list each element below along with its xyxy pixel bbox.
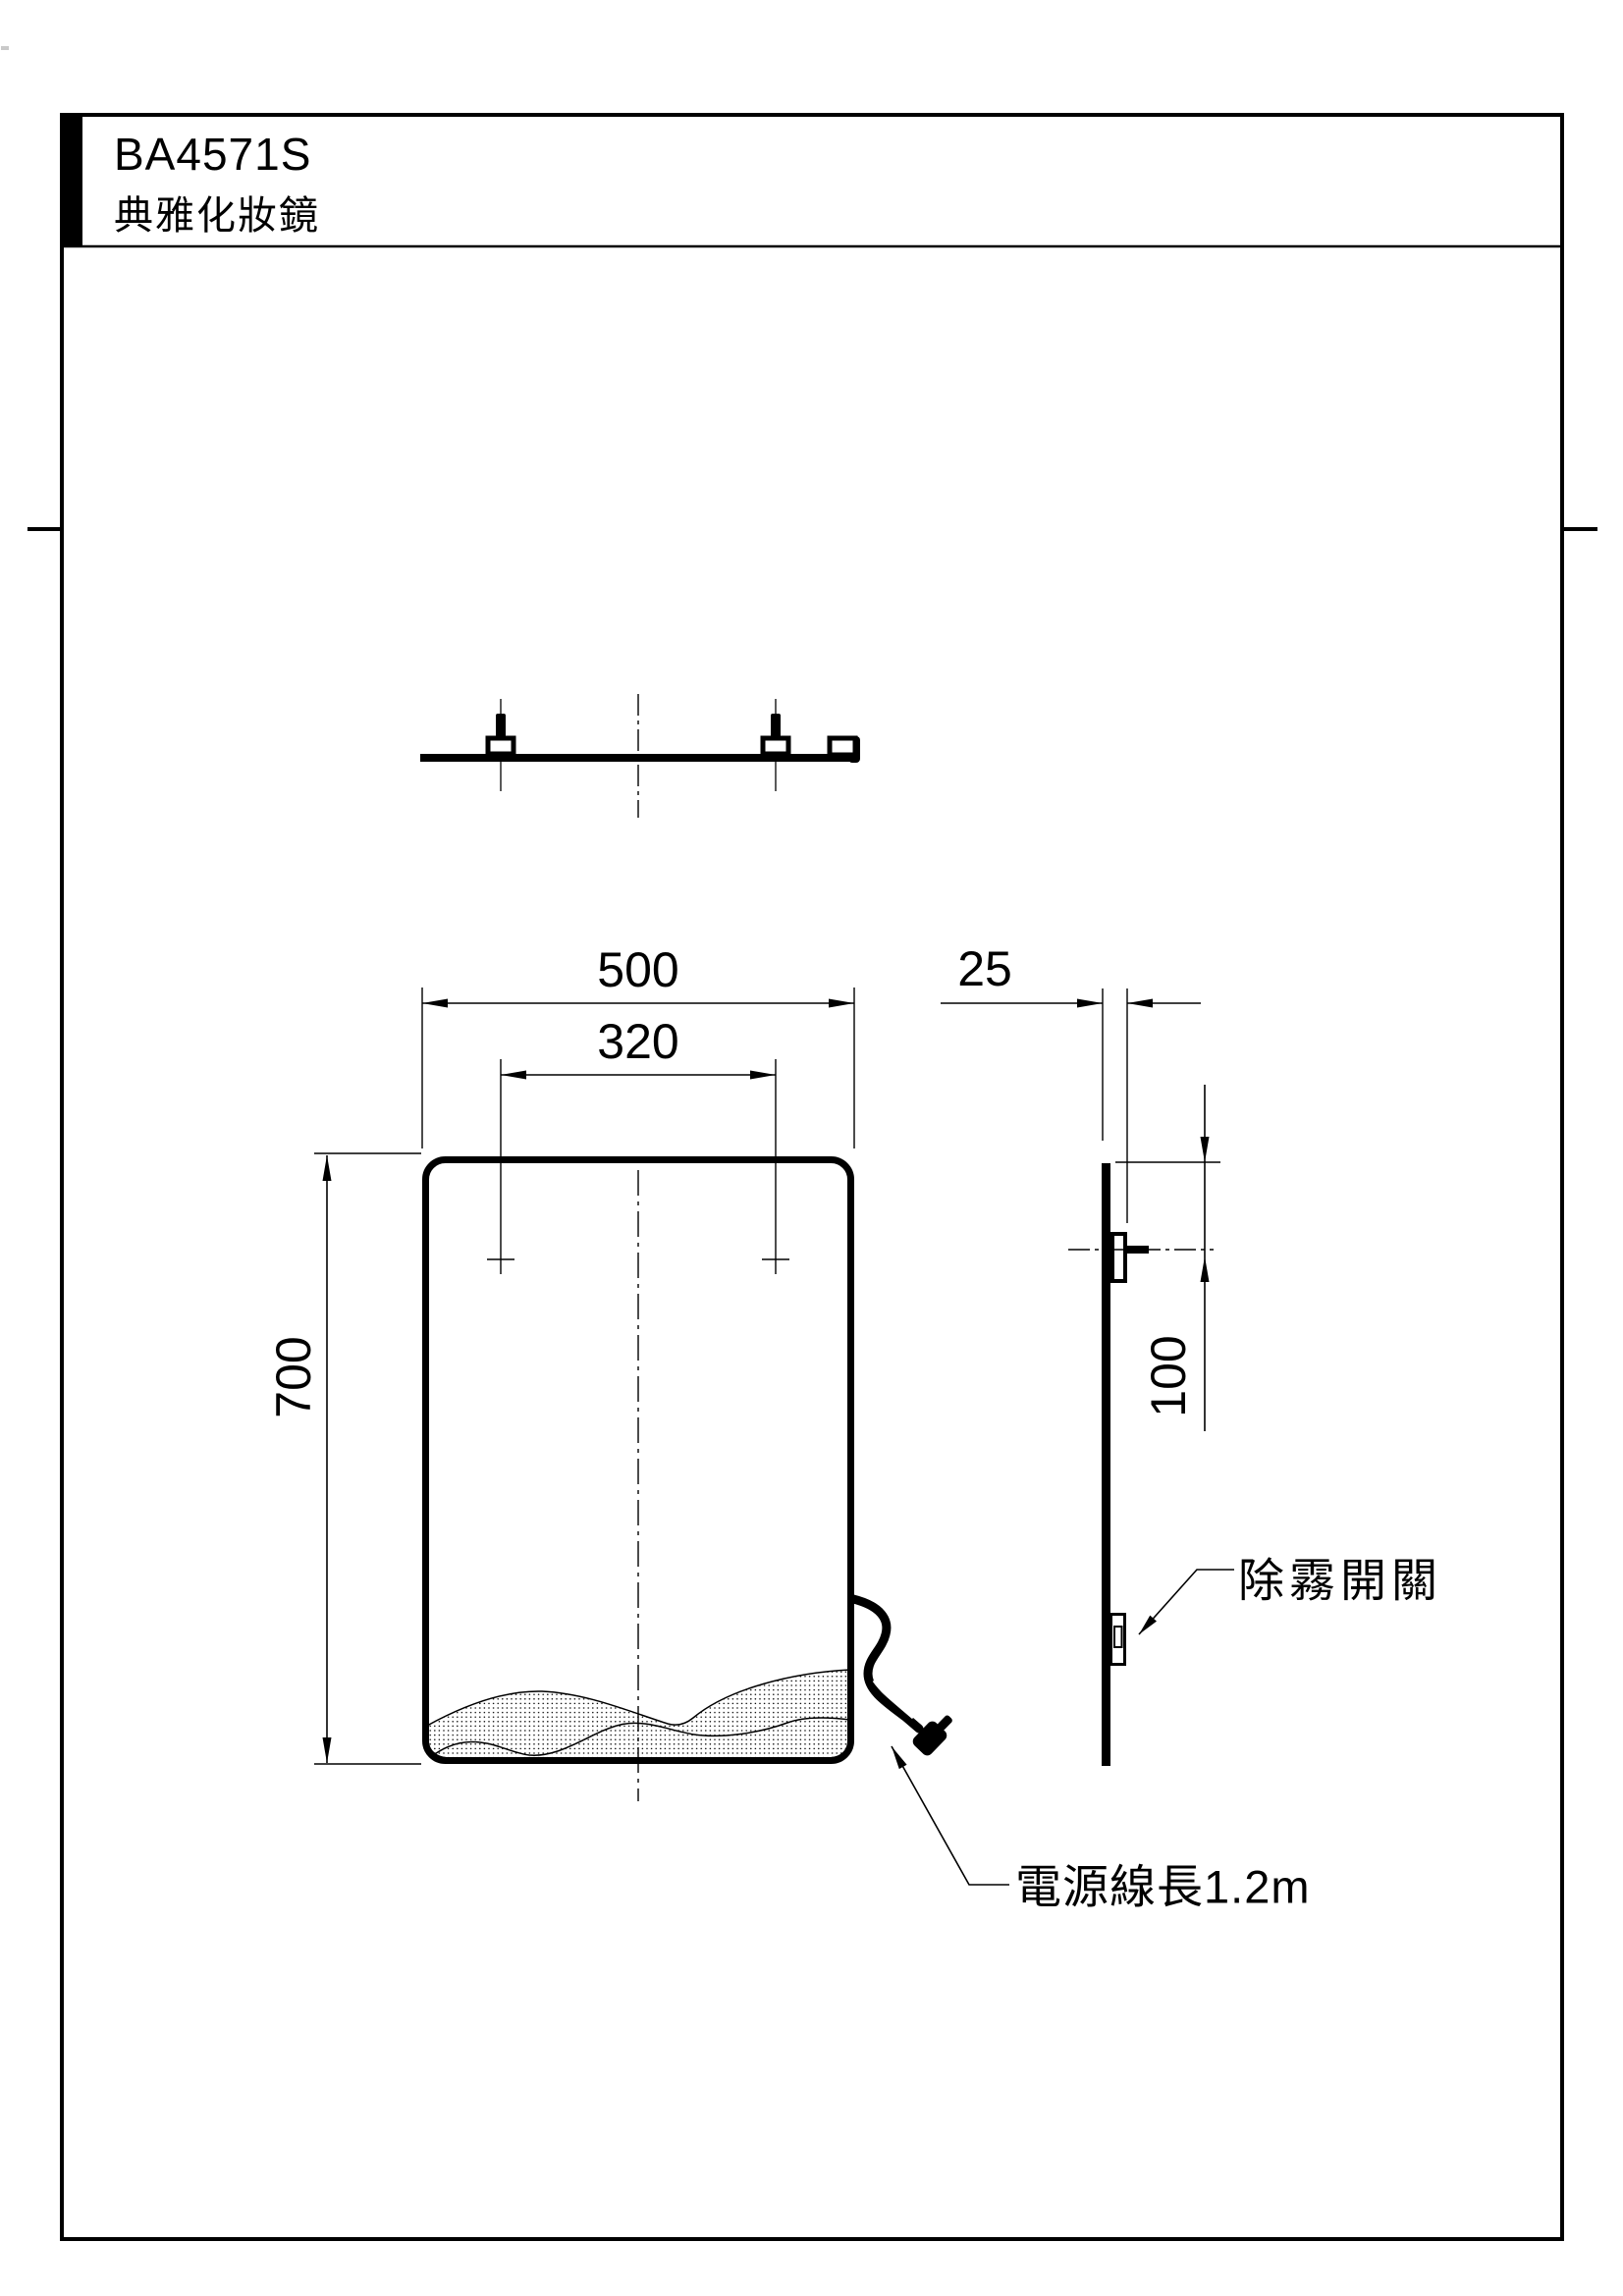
- dim-text-depth: 25: [957, 940, 1012, 997]
- power-cord-label: 電源線長1.2m: [1015, 1849, 1311, 1917]
- side-view-mirror: [1102, 1163, 1110, 1766]
- title-block-bar: [60, 113, 82, 246]
- arrow-top: [323, 1155, 332, 1181]
- power-cord: [853, 1599, 919, 1729]
- dimension-700: [314, 1153, 421, 1764]
- arrow-left: [501, 1071, 526, 1080]
- mounting-bracket-right: [763, 738, 788, 754]
- leader-power-cord: [892, 1746, 1009, 1885]
- linework-canvas: [0, 0, 1623, 2296]
- mounting-bracket-left: [488, 738, 514, 754]
- arrow-left: [1077, 999, 1103, 1008]
- front-view: [426, 1160, 959, 1802]
- arrow-bottom: [1201, 1256, 1210, 1282]
- dim-text-width: 500: [597, 941, 678, 998]
- arrow-bottom: [323, 1737, 332, 1763]
- dim-text-mount-spacing: 320: [597, 1013, 678, 1070]
- dim-text-bracket-offset: 100: [1140, 1335, 1197, 1416]
- defog-switch-label: 除霧開關: [1238, 1543, 1442, 1611]
- product-name: 典雅化妝鏡: [114, 184, 320, 240]
- arrow-right: [1127, 999, 1153, 1008]
- power-plug: [910, 1709, 958, 1758]
- arrow-left: [422, 999, 448, 1008]
- side-view-bracket: [1112, 1234, 1125, 1281]
- top-view: [420, 694, 860, 818]
- leader-arrow: [892, 1746, 907, 1769]
- mounting-bolt-left: [496, 714, 506, 737]
- border-frame: [62, 115, 1562, 2239]
- side-view: [1068, 1163, 1214, 1766]
- dim-text-height: 700: [265, 1336, 322, 1417]
- model-code: BA4571S: [114, 128, 311, 181]
- dimension-25: [941, 988, 1201, 1223]
- dimension-320: [501, 1059, 776, 1274]
- drawing-sheet: BA4571S 典雅化妝鏡 500 320 700 25 100 除霧開關 電源…: [0, 0, 1623, 2296]
- arrow-top: [1201, 1137, 1210, 1162]
- mounting-bolt-right: [771, 714, 781, 737]
- arrow-right: [829, 999, 854, 1008]
- sheet-border: [27, 113, 1597, 2239]
- leader-defog-switch: [1139, 1570, 1234, 1634]
- defog-switch-top-view: [830, 738, 855, 755]
- arrow-right: [750, 1071, 776, 1080]
- defog-switch-button: [1114, 1627, 1122, 1647]
